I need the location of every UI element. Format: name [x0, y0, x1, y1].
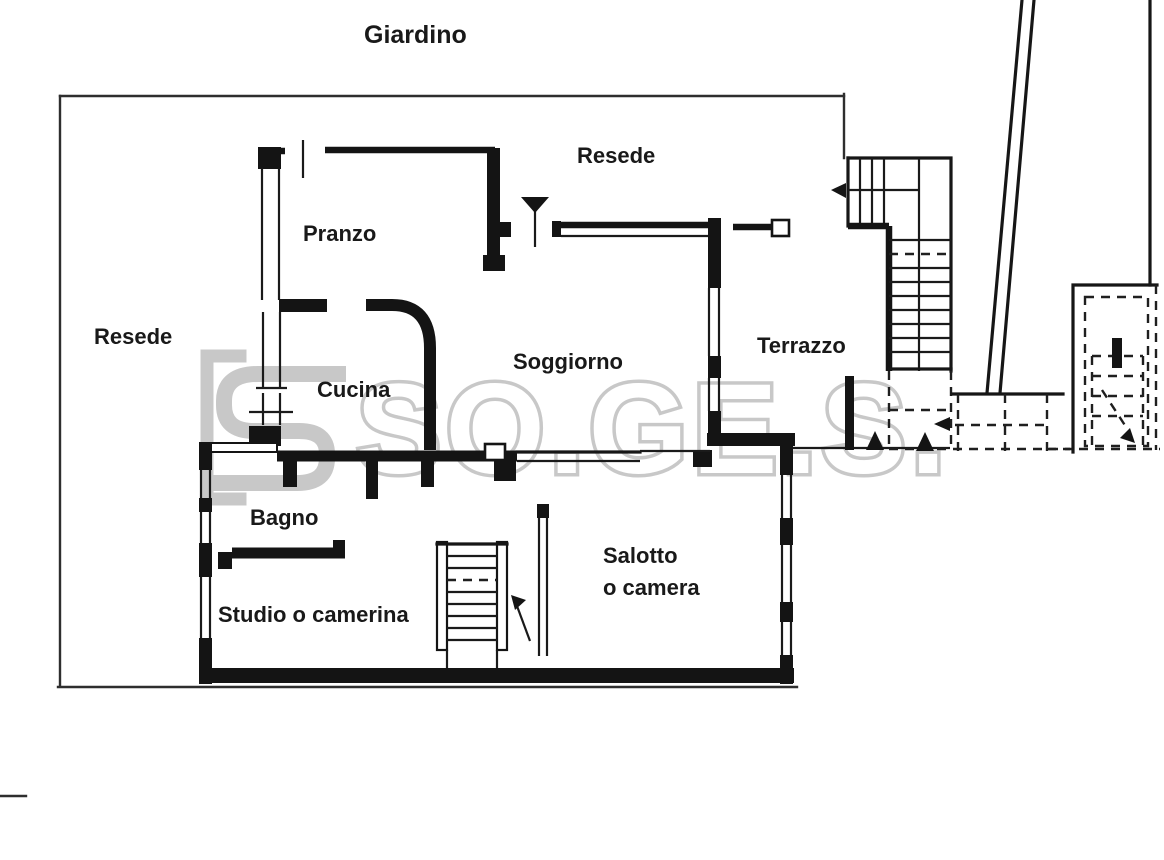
staircase-external	[831, 158, 1070, 451]
passage-wall	[497, 220, 789, 237]
floorplan-drawing	[0, 0, 1164, 860]
soggiorno-divider-wall	[200, 443, 710, 499]
adjacent-structures	[987, 0, 1160, 452]
stair-direction-arrow-icon	[511, 595, 530, 641]
pranzo-cucina-walls	[249, 140, 505, 450]
entry-arrow-left-icon	[831, 183, 846, 198]
floorplan-page: SO.GE.S.	[0, 0, 1164, 860]
terrazzo-walls	[693, 218, 950, 467]
arrow-left-icon	[934, 417, 950, 431]
staircase-internal	[437, 542, 530, 668]
landing-dashed-grid	[934, 394, 1063, 453]
curved-wall	[366, 305, 430, 450]
gate-icon	[521, 197, 549, 247]
